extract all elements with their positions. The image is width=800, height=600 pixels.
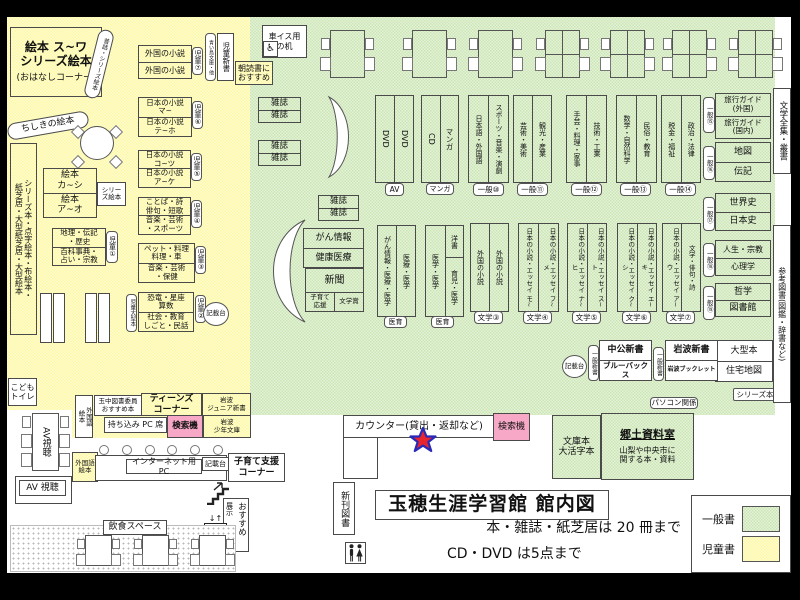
general-shelf-10: 日本語・外国語 スポーツ・音楽・演劇 <box>468 95 509 183</box>
ehon-ka-shi: 絵本 カ~シ <box>43 168 97 194</box>
tag-ippan-10: 一般⑩ <box>473 183 504 196</box>
medical-shelf-2: 医学・医学 洋書 育児・医学 <box>425 225 464 317</box>
jp-novel-cell: 日本の小説 テ~ホ <box>138 117 192 138</box>
tamachu-recommend-box: 玉中図書委員 おすすめ本 <box>94 395 142 416</box>
tag-ippan-17: 一般⑰ <box>703 197 715 231</box>
philosophy-shelf: 哲学 図書館 <box>715 283 771 317</box>
children-shelf-bar <box>40 293 52 343</box>
local-materials-desc: 山梨や中央市に 関する本・資料 <box>620 446 676 464</box>
iwanami-shinsho-shelf: 岩波新書 岩波ブックレット <box>665 340 718 381</box>
tag-jido-3: 児童③ <box>195 246 206 274</box>
iwanami-cell: 岩波新書 <box>665 340 718 361</box>
storytelling-corner-label: (おはなしコーナー) <box>16 73 95 83</box>
legend-children-label: 児童書 <box>702 541 735 557</box>
general-shelf-14: 税金・福祉 政治・法律 <box>661 95 701 183</box>
jp-novel-cell: 日本の小説 マ~ <box>138 97 192 118</box>
dinosaur-math-shelf: 恐竜・星座 算数 社会・教育 しごと・民話 <box>138 292 194 332</box>
cancer-info-rack: がん情報 健康医療 <box>303 228 364 268</box>
shelf-cell: 数学・自然科学 <box>616 95 637 183</box>
pet-cell: ペット・料理 料理・車 <box>138 243 195 264</box>
bunko-large-print-room: 文庫本 大活字本 <box>552 415 601 479</box>
tag-manga: マンガ <box>426 183 454 195</box>
study-table <box>610 30 645 78</box>
ehon-a-o: 絵本 ア~オ <box>43 193 97 219</box>
av-viewing-label: AV 視聴 <box>19 480 66 496</box>
shelf-cell: 手芸・料理・家事 <box>566 95 587 183</box>
study-table <box>545 30 580 78</box>
study-table <box>738 30 773 78</box>
kyoryu-cell: 恐竜・星座 算数 <box>138 292 194 313</box>
crescent-seat <box>323 95 357 179</box>
childcare-medical-cell: 育児・医学 <box>445 257 464 317</box>
series-books-tag: シリーズ本 <box>733 388 777 401</box>
writing-stand-bottom: 記載台 <box>202 457 229 471</box>
children-shelf-bar <box>98 293 110 343</box>
magazine-cell: 雑誌 <box>258 153 301 167</box>
cd-manga-shelf: CD マンガ <box>421 95 459 183</box>
lit-cell: 日本の小説・エッセイ エ~キ <box>637 223 658 312</box>
tag-ippan-13: 一般⑬ <box>620 183 651 196</box>
lit-cell: 日本の小説・エッセイ フ~メ <box>538 223 559 312</box>
map-title: 玉穂生涯学習館 館内図 <box>375 490 609 520</box>
internet-pc-label: インターネット用 PC <box>126 459 202 474</box>
tag-jido-1: 児童① <box>106 231 118 263</box>
lit-cell: 外国の小説 <box>470 223 490 312</box>
language-poetry-shelf: ことば・詩 俳句・短歌 音楽・芸術 ・スポーツ <box>138 197 191 233</box>
foreign-language-ehon-tag: 外国語 絵本 <box>75 395 93 438</box>
children-foreign-novels-shelf: 外国の小説 外国の小説 <box>138 45 192 79</box>
new-books-shelf: 新刊図書 <box>333 482 355 535</box>
magazine-rack: 雑誌 雑誌 <box>318 195 359 221</box>
travel-cell: 旅行ガイド (外国) <box>715 93 771 117</box>
tag-jido-4: 児童④ <box>191 200 202 228</box>
newspaper-cell: 新聞 <box>305 268 364 293</box>
elevator-arrows: ↓↑ <box>204 515 227 523</box>
shelf-cell: 民俗・教育 <box>636 95 657 183</box>
literature-shelf-7: 日本の小説・エッセイ ア~ウ 文学・俳句・詩 <box>662 223 701 312</box>
iwanami-junior-shinsho: 岩波 ジュニア新書 <box>202 393 251 416</box>
chuko-shinsho-shelf: 中公新書 ブルーバックス <box>599 340 652 381</box>
lit-cell: 文学・俳句・詩 <box>681 223 701 312</box>
lit-cell: 外国の小説 <box>489 223 509 312</box>
lit-cell: 日本の小説・エッセイ ナ~ヒ <box>567 223 588 312</box>
literature-shelf-3: 外国の小説 外国の小説 <box>470 223 509 312</box>
tag-ippan-12: 一般⑫ <box>571 183 602 196</box>
reference-books-bar: 参考図書(図鑑・辞書など) <box>773 225 791 403</box>
medical-cell: 医学・医学 <box>425 225 446 317</box>
jutaku-map-cell: 住宅地図 <box>715 361 773 383</box>
library-science-cell: 図書館 <box>715 300 771 318</box>
you-are-here-star <box>409 427 437 453</box>
manga-cell: マンガ <box>440 95 460 183</box>
counter-chairs <box>99 445 223 455</box>
childcare-support-corner: 子育て支援 コーナー <box>228 453 285 482</box>
dvd-shelf: DVD DVD <box>375 95 414 183</box>
map-cell: 地図 <box>715 142 771 163</box>
world-history-cell: 世界史 <box>715 193 771 213</box>
tag-ippan-19: 一般⑲ <box>703 286 715 320</box>
dining-table <box>85 535 112 566</box>
legend-children-swatch <box>742 536 780 562</box>
tag-jido-5: 児童⑤ <box>191 153 202 181</box>
dvd-cell: DVD <box>394 95 414 183</box>
psychology-cell: 心理学 <box>715 258 771 277</box>
encyclopedia-cell: 百科事典・ 占い・宗教 <box>52 247 106 267</box>
general-shelf-12: 手芸・料理・家事 技術・工業 <box>566 95 607 183</box>
kids-toilet: こども トイレ <box>8 378 37 406</box>
ogata-cell: 大型本 <box>715 340 773 362</box>
geography-biography-shelf: 地理・伝記 ・歴史 百科事典・ 占い・宗教 <box>52 228 106 266</box>
magazine-cell: 雑誌 <box>258 97 301 111</box>
magazine-rack: 雑誌 雑誌 <box>258 140 301 166</box>
reading-table-round <box>73 123 121 169</box>
study-table <box>478 30 513 78</box>
lit-cell: 日本の小説・エッセイ ク~シ <box>617 223 638 312</box>
newspaper-rack: 新聞 子育て 応援 文学賞 <box>305 268 364 312</box>
lit-cell: 日本の小説・エッセイ ア~ウ <box>662 223 682 312</box>
series-ehon-box: シリーズ絵本 <box>97 182 126 206</box>
jp-novel-cell: 日本の小説 ア~ケ <box>138 168 191 187</box>
pet-cell: 音楽・芸術 ・保健 <box>138 263 195 284</box>
teens-corner: ティーンズ コーナー <box>141 393 202 416</box>
shelf-cell: 税金・福祉 <box>661 95 682 183</box>
tag-bungaku-4: 文学④ <box>523 311 552 324</box>
shelf-cell: 技術・工業 <box>586 95 607 183</box>
kyoryu-cell: 社会・教育 しごと・民話 <box>138 312 194 333</box>
foreign-novel-cell: 外国の小説 <box>138 62 192 80</box>
medical-cell: 医療・医学 <box>396 225 416 317</box>
kosodate-ouen-cell: 子育て 応援 <box>305 292 335 312</box>
ehon-shelf: 絵本 カ~シ 絵本 ア~オ <box>43 168 97 218</box>
study-table <box>672 30 707 78</box>
children-shelf-bar <box>53 293 65 343</box>
byod-pc-seat: 持ち込み PC 席 <box>104 417 167 433</box>
jp-novels-ma-shelf: 日本の小説 マ~ 日本の小説 テ~ホ <box>138 97 192 137</box>
search-machine-counter: 検索機 <box>493 413 530 441</box>
cd-cell: CD <box>421 95 441 183</box>
lit-cell: 日本の小説・エッセイ モ~ <box>518 223 539 312</box>
local-materials-title: 郷土資料室 <box>620 429 675 442</box>
morning-reading-box: 朝読書に おすすめ <box>235 61 273 85</box>
literature-shelf-4: 日本の小説・エッセイ モ~ 日本の小説・エッセイ フ~メ <box>518 223 559 312</box>
children-large-books-tag: 児童大型本 <box>126 294 137 332</box>
tag-iiku-1: 医育 <box>384 316 407 328</box>
kotoba-cell: 音楽・芸術 ・スポーツ <box>138 215 191 234</box>
shelf-cell: スポーツ・音楽・演劇 <box>488 95 509 183</box>
library-floor-map: 絵本 ス~ワ シリーズ絵本 (おはなしコーナー) 昔話・シリーズ絵本 ちしきの絵… <box>0 0 800 600</box>
jp-novels-ko-shelf: 日本の小説 コ~ツ 日本の小説 ア~ケ <box>138 150 191 186</box>
study-table <box>330 30 365 78</box>
writing-stand-general: 記載台 <box>562 355 587 378</box>
biography-cell: 伝記 <box>715 162 771 183</box>
tag-ippan-shinsho: 一般新書 <box>588 345 599 381</box>
legend-general-swatch <box>742 506 780 532</box>
chuko-cell: 中公新書 <box>599 340 652 361</box>
tag-ippan-14: 一般⑭ <box>665 183 696 196</box>
tag-ippan-shinsho: 一般新書 <box>653 347 664 381</box>
tag-jido-7: 児童⑦ <box>192 47 203 75</box>
recommended-display-label: おすすめ <box>236 502 248 551</box>
tag-av: AV <box>385 183 404 196</box>
shelf-cell: 政治・法律 <box>681 95 702 183</box>
travel-cell: 旅行ガイド (国内) <box>715 116 771 140</box>
magazine-cell: 雑誌 <box>258 140 301 154</box>
tag-ippan-16: 一般⑯ <box>703 146 715 180</box>
local-materials-room: 郷土資料室 山梨や中央市に 関する本・資料 <box>601 413 694 480</box>
gan-cell: 健康医療 <box>303 248 364 269</box>
medical-shelf-1: がん情報・医療・医学 医療・医学 <box>377 225 416 317</box>
bungakusho-cell: 文学賞 <box>334 292 364 312</box>
gan-cell: がん情報 <box>303 228 364 249</box>
yosho-cell: 洋書 <box>445 225 464 258</box>
kotoba-cell: ことば・詩 俳句・短歌 <box>138 197 191 216</box>
geo-cell: 地理・伝記 ・歴史 <box>52 228 106 248</box>
cd-dvd-limit-note: CD・DVD は5点まで <box>447 543 627 560</box>
legend: 一般書 児童書 <box>691 495 791 573</box>
dining-table <box>142 535 169 566</box>
shelf-cell: 観光・産業 <box>532 95 552 183</box>
shelf-cell: 芸術・美術 <box>513 95 533 183</box>
dining-table <box>199 535 226 566</box>
tag-ippan-18: 一般⑱ <box>703 243 715 277</box>
tag-ippan-11: 一般⑪ <box>517 183 548 196</box>
tag-bungaku-7: 文学⑦ <box>666 311 695 324</box>
shelf-cell: 日本語・外国語 <box>468 95 489 183</box>
tag-ippan-15: 一般⑮ <box>703 97 715 133</box>
general-shelf-11: 芸術・美術 観光・産業 <box>513 95 552 183</box>
wheelchair-icon: ♿ <box>263 41 278 57</box>
series-braille-kamishibai-shelf: シリーズ本・点字絵本・布絵本・ 紙芝居・大型紙芝居・大型絵本 <box>10 143 37 335</box>
tag-iiku-2: 医育 <box>431 316 454 328</box>
av-viewing-table: AV視聴 <box>32 413 59 471</box>
literature-shelf-6: 日本の小説・エッセイ ク~シ 日本の小説・エッセイ エ~キ <box>617 223 657 312</box>
bluebacks-cell: ブルーバックス <box>599 360 652 381</box>
writing-stand-children: 記載台 <box>203 302 229 326</box>
pc-related-tag: パソコン関係 <box>650 397 698 409</box>
dining-space-label: 飲食スペース <box>103 520 167 535</box>
legend-general-label: 一般書 <box>702 511 735 527</box>
counter-leg <box>343 437 378 479</box>
aoitori-bunko-tag: 青い鳥文庫・他 <box>205 33 216 81</box>
large-books-shelf: 大型本 住宅地図 <box>715 340 773 382</box>
history-shelf: 世界史 日本史 <box>715 193 771 231</box>
restroom-icon <box>345 542 366 564</box>
literature-shelf-5: 日本の小説・エッセイ ナ~ヒ 日本の小説・エッセイ ス~ト <box>567 223 607 312</box>
magazine-cell: 雑誌 <box>318 208 359 222</box>
travel-guide-shelf: 旅行ガイド (外国) 旅行ガイド (国内) <box>715 93 771 139</box>
magazine-rack: 雑誌 雑誌 <box>258 97 301 123</box>
search-machine-teens: 検索機 <box>167 415 203 438</box>
foreign-novel-cell: 外国の小説 <box>138 45 192 63</box>
pet-cooking-shelf: ペット・料理 料理・車 音楽・芸術 ・保健 <box>138 243 195 283</box>
tag-bungaku-6: 文学⑥ <box>622 311 651 324</box>
picture-book-range: 絵本 ス~ワ <box>25 41 87 55</box>
children-shelf-bar <box>85 293 97 343</box>
iwanami-booklet-cell: 岩波ブックレット <box>665 360 718 381</box>
tag-bungaku-3: 文学③ <box>474 311 503 324</box>
picture-book-series: シリーズ絵本 <box>20 55 91 69</box>
philosophy-cell: 哲学 <box>715 283 771 301</box>
tag-jido-6: 児童⑥ <box>192 101 203 129</box>
literature-collection-bar: 文学全集・叢書 <box>773 88 791 174</box>
dvd-cell: DVD <box>375 95 395 183</box>
children-shinsho-shelf: 児童新書 <box>217 33 234 81</box>
iwanami-shonen-bunko: 岩波 少年文庫 <box>203 415 251 438</box>
general-shelf-13: 数学・自然科学 民俗・教育 <box>616 95 657 183</box>
magazine-cell: 雑誌 <box>258 110 301 124</box>
life-religion-cell: 人生・宗教 <box>715 240 771 259</box>
tag-bungaku-5: 文学⑤ <box>572 311 601 324</box>
medical-cell: がん情報・医療・医学 <box>377 225 397 317</box>
japan-history-cell: 日本史 <box>715 212 771 232</box>
life-religion-shelf: 人生・宗教 心理学 <box>715 240 771 276</box>
map-biography-shelf: 地図 伝記 <box>715 142 771 182</box>
loan-limit-note: 本・雑誌・紙芝居は 20 冊まで <box>427 520 681 537</box>
magazine-cell: 雑誌 <box>318 195 359 209</box>
study-table <box>412 30 447 78</box>
map-area: 絵本 ス~ワ シリーズ絵本 (おはなしコーナー) 昔話・シリーズ絵本 ちしきの絵… <box>7 17 791 573</box>
jp-novel-cell: 日本の小説 コ~ツ <box>138 150 191 169</box>
lit-cell: 日本の小説・エッセイ ス~ト <box>587 223 608 312</box>
